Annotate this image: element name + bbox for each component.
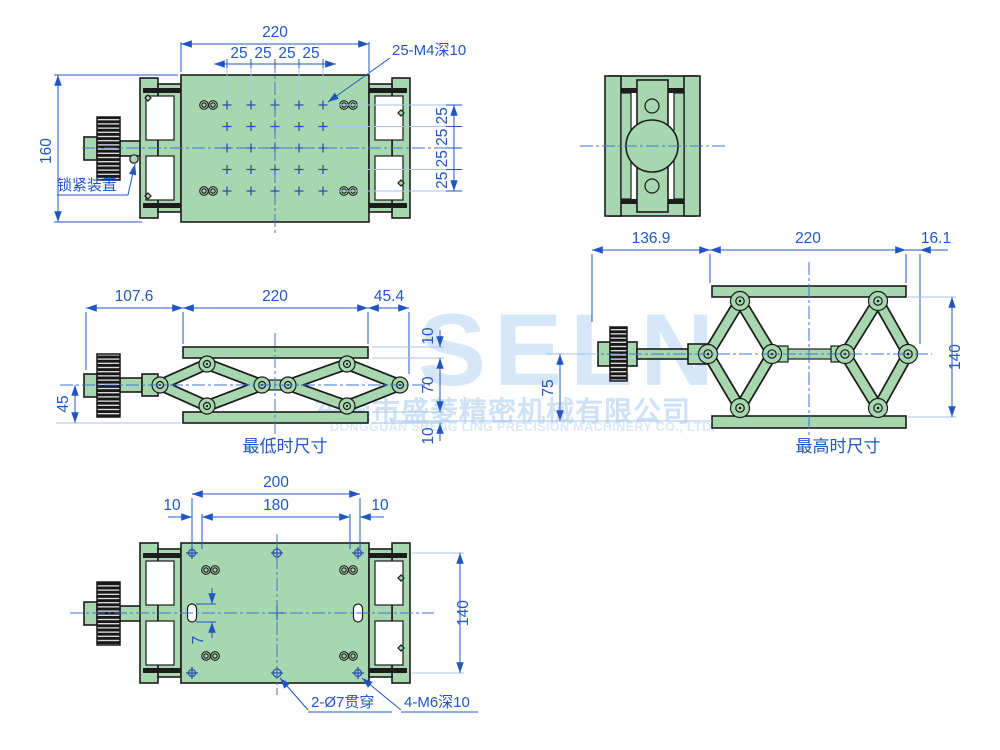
dim-offset-left-10: 10 [163,497,181,514]
dim-220-lowest: 220 [262,288,288,305]
technical-drawing: 220 25 25 25 25 160 25 25 [0,0,1000,750]
dim-pitch-25-3: 25 [278,45,295,62]
dim-slot-7: 7 [190,636,207,645]
dim-side-25-4: 25 [434,172,451,189]
dim-span-70: 70 [420,376,437,394]
dim-height-160: 160 [38,138,55,164]
callout-tapped-text: 4-M6深10 [404,694,470,711]
dim-16-1: 16.1 [921,230,951,247]
drawing-canvas: SELN 东莞市盛菱精密机械有限公司 DONGGUAN SHENG LING P… [0,0,1000,750]
dim-offset-right-10: 10 [371,497,389,514]
lowest-view-label: 最低时尺寸 [243,437,328,456]
dim-pitch-25-1: 25 [230,45,247,62]
dim-height-140-bottom: 140 [455,600,472,626]
dim-pitch-25-2: 25 [254,45,271,62]
dim-side-25-1: 25 [434,107,451,124]
highest-view: 136.9 220 16.1 140 75 最高时尺寸 [390,230,964,456]
dim-height-140: 140 [947,344,964,370]
callout-holes-text: 25-M4深10 [392,42,466,59]
dim-side-25-2: 25 [434,129,451,146]
dim-220-highest: 220 [795,230,821,247]
dim-pitch-25-4: 25 [302,45,319,62]
dim-136-9: 136.9 [632,230,671,247]
callout-through-text: 2-Ø7贯穿 [311,694,374,711]
bottom-view: 200 180 10 10 7 140 2-Ø7贯穿 [70,474,478,712]
dim-top-plate-10: 10 [420,327,437,345]
dim-center-45: 45 [55,395,72,412]
dim-center-75: 75 [540,379,557,396]
lowest-view: 107.6 220 45.4 10 70 10 45 最低时尺寸 [55,288,444,456]
dim-outer-200: 200 [263,474,289,491]
lock-screw [130,155,138,163]
dim-bottom-plate-10: 10 [420,427,437,445]
dim-width-220: 220 [262,24,288,41]
dim-107-6: 107.6 [115,288,154,305]
dim-45-4: 45.4 [374,288,405,305]
callout-lock-text: 锁紧装置 [57,177,117,194]
top-view: 220 25 25 25 25 160 25 25 [38,24,466,236]
end-view [580,76,725,216]
highest-view-label: 最高时尺寸 [796,437,881,456]
dim-side-25-3: 25 [434,150,451,167]
dim-inner-180: 180 [263,497,289,514]
